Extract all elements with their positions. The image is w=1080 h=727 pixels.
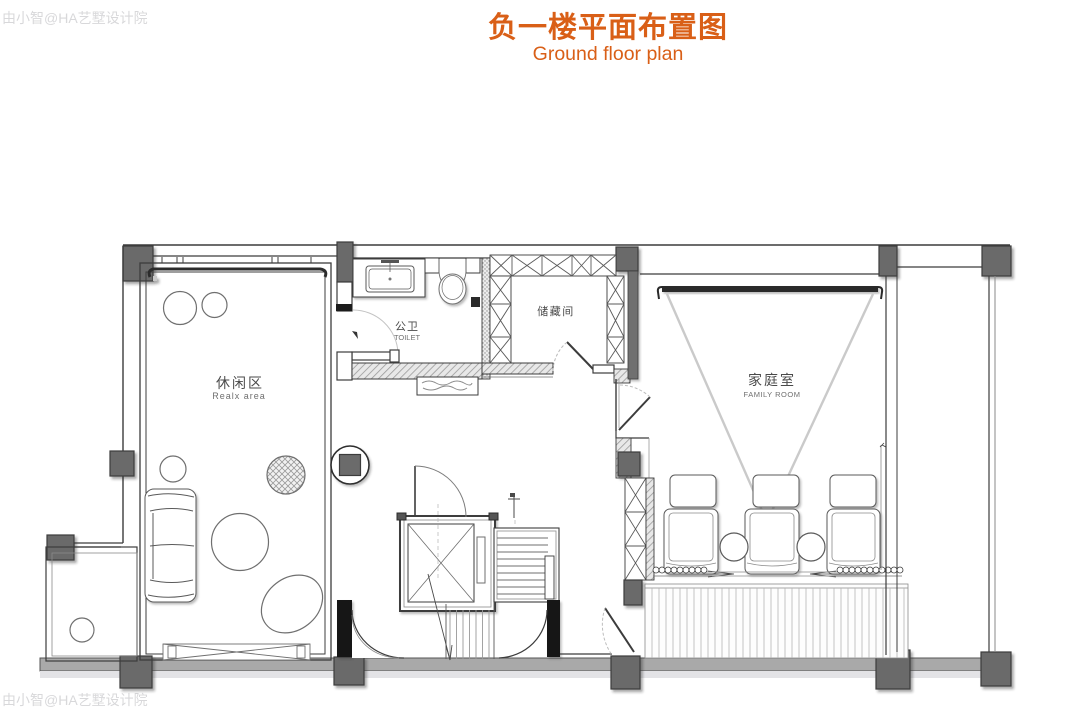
svg-text:家庭室: 家庭室 [748, 372, 796, 388]
svg-text:FAMILY ROOM: FAMILY ROOM [744, 390, 801, 399]
svg-text:Realx area: Realx area [212, 391, 266, 401]
svg-text:储藏间: 储藏间 [537, 304, 575, 318]
svg-text:TOILET: TOILET [394, 333, 421, 342]
svg-text:公卫: 公卫 [395, 321, 419, 333]
svg-text:休闲区: 休闲区 [216, 375, 264, 391]
